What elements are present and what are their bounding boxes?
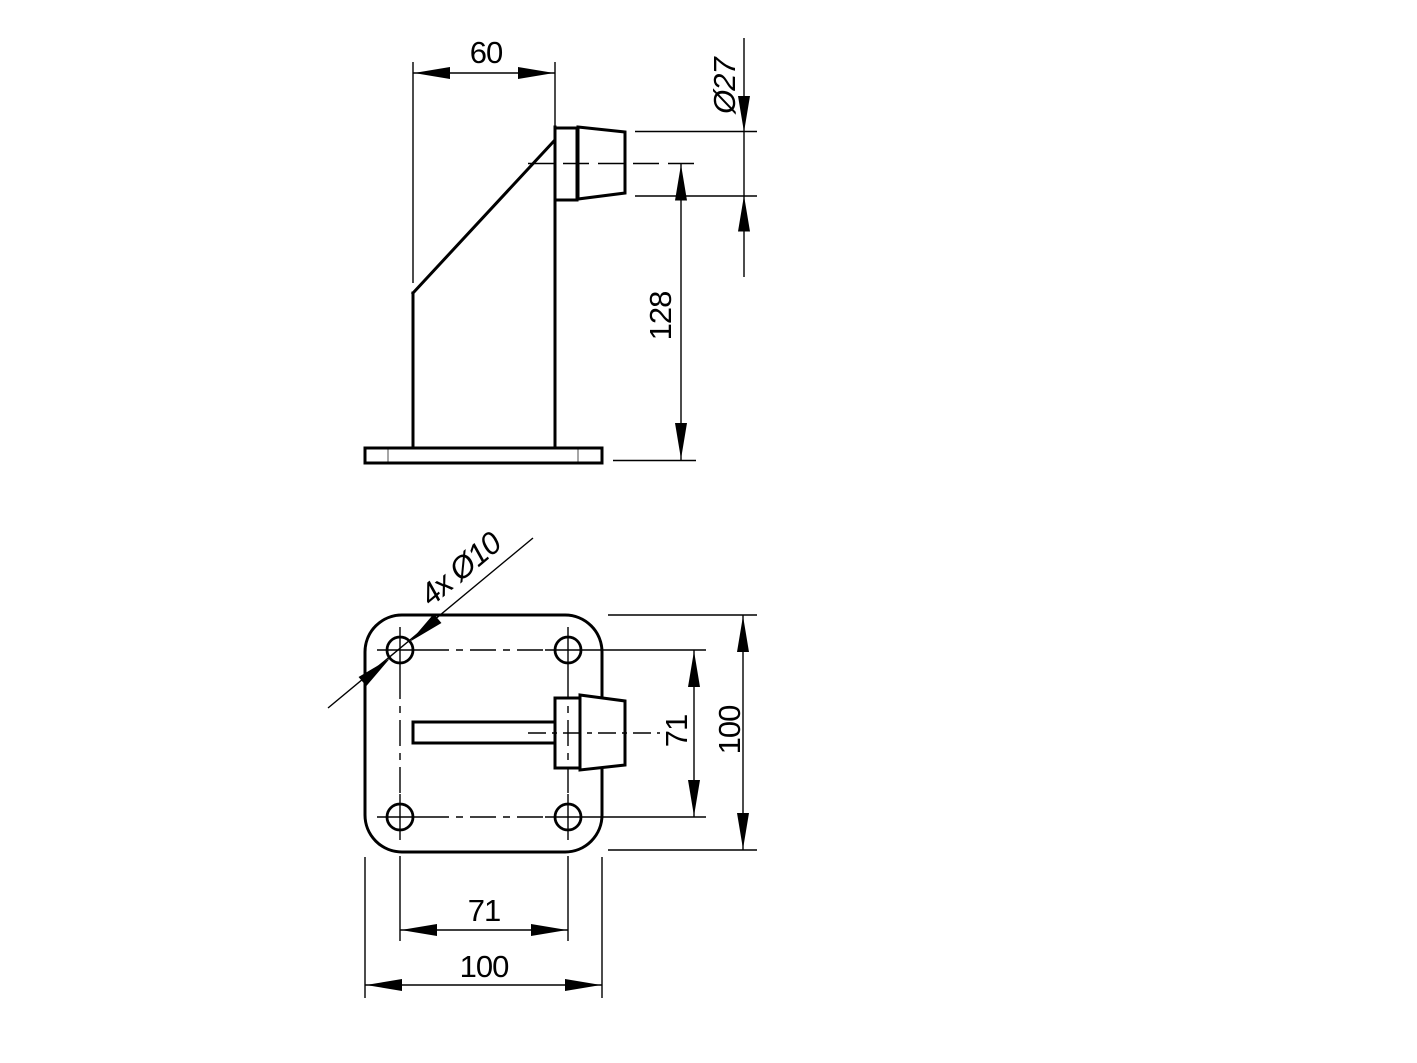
arrowhead: [737, 616, 749, 652]
dim-label-128: 128: [643, 292, 678, 341]
arrowhead: [738, 196, 750, 232]
arrowhead: [688, 651, 700, 687]
dim-stop-center-height: 128: [613, 164, 696, 461]
arrowhead: [414, 67, 450, 79]
side-view: 60 Ø27 128: [365, 35, 757, 463]
dim-stop-diameter: Ø27: [635, 38, 757, 277]
arrowhead: [531, 924, 567, 936]
base-plate-side: [365, 448, 602, 463]
arrowhead: [675, 165, 687, 201]
mounting-hole-bottom-left: [377, 794, 423, 840]
arrowhead: [518, 67, 554, 79]
technical-drawing-canvas: 60 Ø27 128: [0, 0, 1417, 1063]
dim-label-100-horizontal: 100: [460, 949, 509, 984]
mounting-hole-top-left: [377, 627, 423, 673]
arrowhead: [675, 423, 687, 459]
dim-label-4x-diameter-10: 4x Ø10: [413, 525, 508, 613]
plan-view: 4x Ø10 71 100 71: [328, 525, 757, 998]
dim-hole-spacing-horizontal: 71: [400, 856, 568, 941]
arrowhead: [688, 780, 700, 816]
dim-label-diameter-27: Ø27: [707, 55, 742, 114]
dim-label-71-vertical: 71: [659, 715, 694, 747]
arrowhead: [401, 924, 437, 936]
dim-hole-spacing-vertical: 71: [659, 650, 700, 817]
mounting-hole-bottom-right: [545, 794, 591, 840]
arrowhead: [565, 979, 601, 991]
arrowhead: [737, 813, 749, 849]
dim-label-71-horizontal: 71: [468, 893, 500, 928]
stop-plan: [413, 673, 660, 794]
dim-column-width: 60: [413, 35, 555, 283]
dim-label-100-vertical: 100: [712, 705, 747, 754]
mounting-hole-top-right: [545, 627, 591, 673]
arrowhead: [366, 979, 402, 991]
dim-label-60: 60: [470, 35, 503, 70]
